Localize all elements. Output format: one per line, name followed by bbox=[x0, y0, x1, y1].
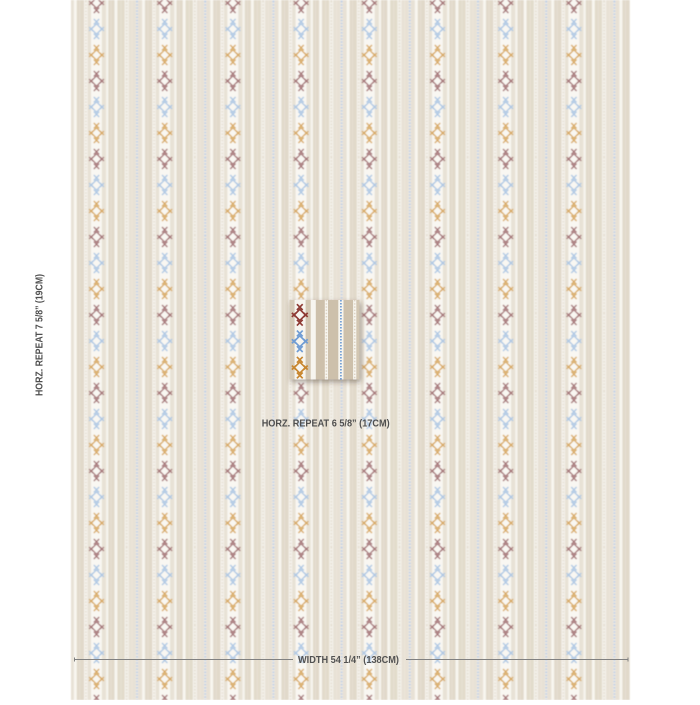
svg-text:HORZ. REPEAT 6 5/8” (17CM): HORZ. REPEAT 6 5/8” (17CM) bbox=[262, 419, 390, 430]
svg-text:HORZ. REPEAT 7 5/8” (19CM): HORZ. REPEAT 7 5/8” (19CM) bbox=[35, 274, 46, 396]
svg-text:WIDTH 54 1/4” (138CM): WIDTH 54 1/4” (138CM) bbox=[298, 655, 399, 666]
